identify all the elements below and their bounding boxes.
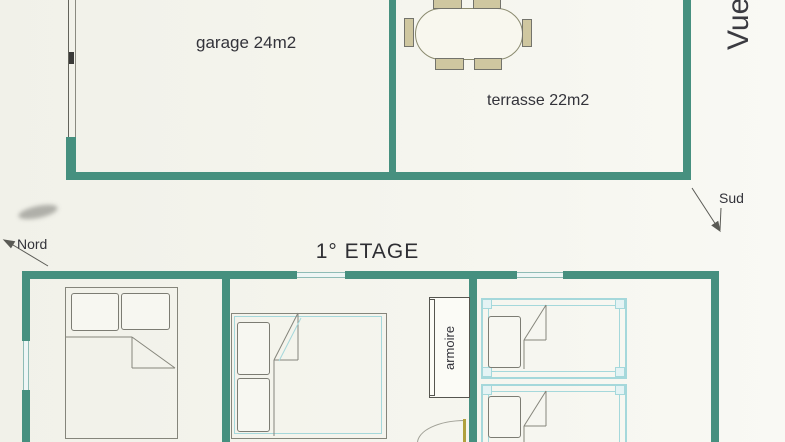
bed2-pillow-bottom [237,378,270,432]
armoire-label: armoire [442,326,457,370]
nord-label: Nord [17,236,47,252]
floor-plan-scan: garage 24m2 terrasse 22m2 Vue 1° ETAGE N… [0,0,785,442]
chair-right [522,19,532,47]
interior-wall-room1-room2 [222,279,230,442]
first-floor-top-wall-right [563,271,719,279]
left-wall-window [23,341,29,390]
first-floor-left-wall-lower [22,390,30,442]
ground-floor-bottom-wall [66,172,691,180]
armoire-door-rail [429,299,435,396]
bed1-pillow-right [121,293,170,330]
first-floor-top-wall-left [22,271,297,279]
chair-bottom-left [435,58,464,70]
twinA-pillow [488,316,521,368]
twinA-corner-br [615,367,625,377]
garage-door-hinge-mark [69,52,74,64]
garage-area-label: garage 24m2 [196,33,296,53]
first-floor-title: 1° ETAGE [285,240,450,264]
top-wall-window-1 [297,272,345,278]
vue-label: Vue [722,0,756,50]
chair-left [404,18,414,47]
first-floor-top-wall-mid [345,271,517,279]
chair-top-right [473,0,501,9]
twinA-corner-bl [482,367,492,377]
bed2-pillow-top [237,322,270,375]
sud-arrow [692,188,721,231]
twinA-corner-tr [615,299,625,309]
first-floor-right-wall [711,272,719,442]
first-floor-left-wall-upper [22,272,30,341]
twinB-pillow [488,396,521,438]
dining-table [415,8,523,60]
terrasse-right-wall [683,0,691,180]
interior-wall-room2-room3 [469,279,477,442]
door-swing-arc [417,420,465,442]
twinA-corner-tl [482,299,492,309]
door-leaf [463,419,466,442]
top-wall-window-2 [517,272,563,278]
garage-left-wall [68,0,76,137]
garage-terrasse-divider-wall [389,0,396,180]
twinB-corner-tr [615,385,625,395]
bed1-pillow-left [71,293,119,331]
twinB-corner-tl [482,385,492,395]
sud-label: Sud [719,190,744,206]
terrasse-area-label: terrasse 22m2 [487,92,589,110]
chair-top-left [433,0,462,9]
scan-smudge [17,202,59,222]
chair-bottom-right [474,58,502,70]
